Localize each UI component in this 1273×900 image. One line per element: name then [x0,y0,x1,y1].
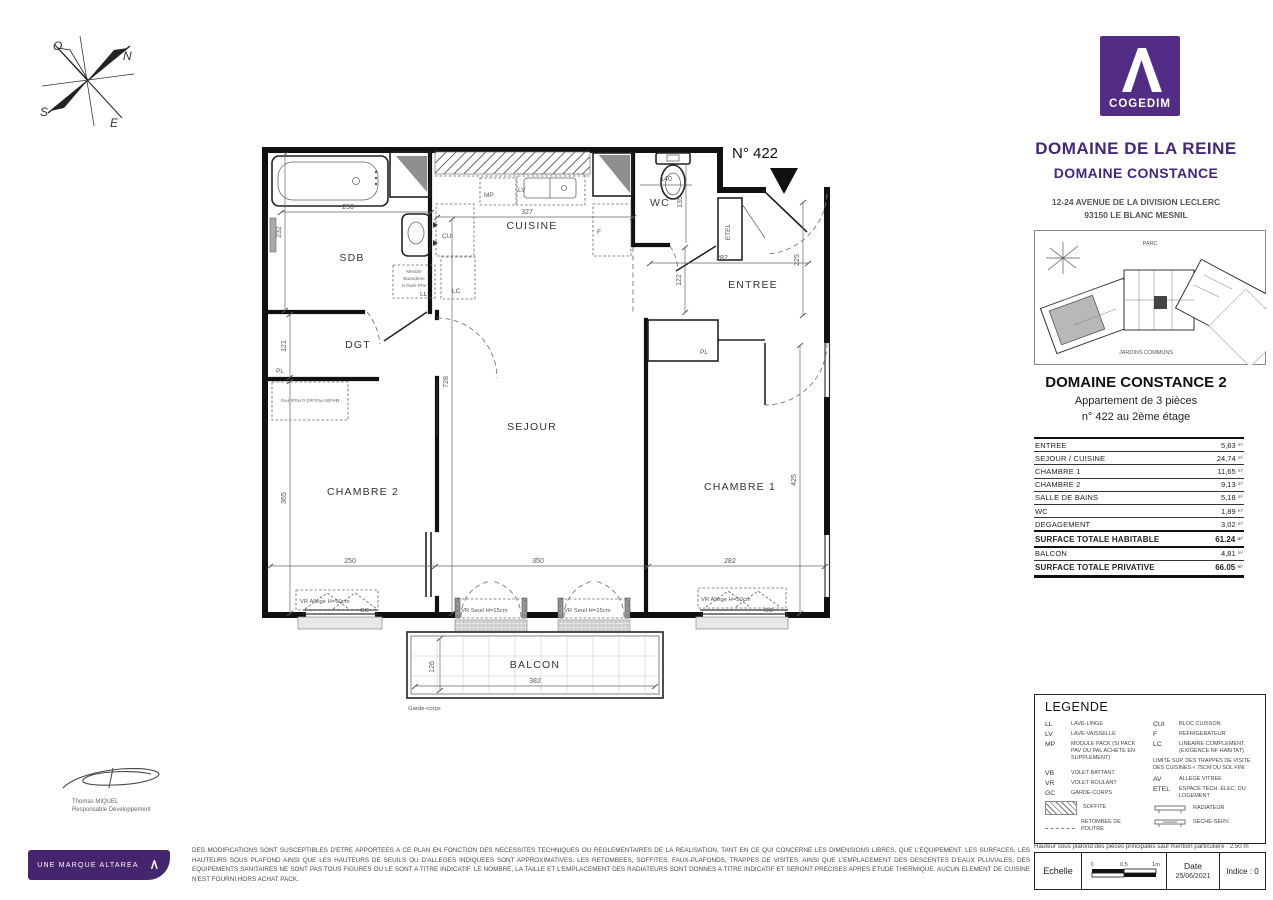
dim-balcon-depth: 126 [429,661,436,673]
room-entree-label: ENTREE [728,279,778,291]
interior-walls [265,150,668,615]
floor-plan: N° 422 [230,120,870,720]
project-subtitle: DOMAINE CONSTANCE [1008,165,1264,181]
legend-abbr: VR [1045,780,1071,787]
window-ch2-label: VR Allège H=50cm [300,599,350,605]
area-value: 11,65 m² [1217,467,1243,476]
soffite-hatch [435,152,590,174]
plan-sheet: O N S E N° 422 [0,0,1273,900]
dim-ch2-height: 365 [281,492,288,504]
legend-text: BLOC CUISSON [1179,721,1221,728]
dim-wc-height: 135 [677,196,684,208]
index-cell: Indice : 0 [1220,853,1265,889]
room-chambre2-label: CHAMBRE 2 [327,486,399,498]
area-label: SURFACE TOTALE PRIVATIVE [1035,563,1155,572]
dim-sejour-width: 350 [532,558,544,565]
scale-tick-05: 0,5 [1120,862,1128,868]
lambda-small-icon [147,858,161,872]
window-ch1-label: VR Allège H=50cm [701,597,751,603]
ll-label: LL [420,291,428,298]
window-sejour2-label: VR Seuil H=15cm [564,608,611,614]
ceiling-height-note: Hauteur sous plafond des pièces principa… [1034,843,1264,850]
legend-text: GARDE-CORPS [1071,790,1112,797]
compass-west-label: O [53,39,62,53]
area-value: 61.24 m² [1215,535,1243,544]
site-plan-thumbnail: PARC JARDINS COMMUNS [1034,230,1266,365]
dim-sdb-left: 232 [276,226,283,238]
legend-abbr: GC [1045,790,1071,797]
area-value: 5,18 m² [1221,493,1243,502]
area-value: 1,89 m² [1221,507,1243,516]
table-row: WC1,89 m² [1034,505,1244,518]
legend-text: ESPACE TECH. ELEC. DU LOGEMENT [1179,786,1257,800]
room-sdb-label: SDB [339,252,364,264]
dim-ch2-width: 250 [344,558,356,565]
table-row: CHAMBRE 29,13 m² [1034,479,1244,492]
soffite-swatch-icon [1045,801,1077,815]
signer-name: Thomas MIQUEL [72,798,151,806]
lc-label: LC [452,288,461,295]
legend-box: LEGENDE LLLAVE-LINGE LVLAVE-VAISSELLE MP… [1034,694,1266,844]
site-plan-jardins-label: JARDINS COMMUNS [1119,350,1173,356]
project-title: DOMAINE DE LA REINE [1008,139,1264,159]
dim-entree-width: 282 [716,255,728,262]
area-label: WC [1035,507,1048,516]
compass-south-label: S [40,105,48,119]
area-value: 9,13 m² [1221,480,1243,489]
lv-label: LV [518,187,526,194]
scale-tick-0: 0 [1090,862,1093,868]
room-balcon-label: BALCON [510,659,560,671]
dim-dgt: 121 [281,340,288,352]
area-value: 3,02 m² [1221,520,1243,529]
dim-ch1-width: 282 [724,558,736,565]
window-sejour1-label: VR Seuil H=15cm [461,608,508,614]
dim-sejour-height: 728 [443,376,450,388]
legend-text: REFRIGERATEUR [1179,731,1226,738]
dim-entree-height: 225 [794,254,801,266]
legend-column-left: LLLAVE-LINGE LVLAVE-VAISSELLE MPMODULE P… [1045,721,1140,832]
mp-label: MP [484,192,494,199]
meuble-buanderie-line2: Buanderie [403,276,425,281]
legend-text: LAVE-LINGE [1071,721,1103,728]
etel-closet: ETEL [718,198,765,260]
beam-dash-icon [1045,828,1075,829]
area-value: 4,81 m² [1221,549,1243,558]
table-row: ENTREE5,63 m² [1034,439,1244,452]
dim-ch1-height: 425 [791,474,798,486]
table-row: DEGAGEMENT3,02 m² [1034,518,1244,532]
compass-north-label: N [123,49,132,63]
bathtub [272,156,388,206]
legend-abbr: MP [1045,741,1071,762]
legend-text: ALLEGE VITREE [1179,776,1222,783]
dim-hall: 122 [676,274,683,286]
area-label: SURFACE TOTALE HABITABLE [1035,535,1159,544]
dim-tub: 250 [342,204,354,211]
cogedim-logo: COGEDIM [1100,36,1180,116]
unit-marker-arrow-icon [770,168,798,194]
table-row: CHAMBRE 111,65 m² [1034,465,1244,478]
table-row: BALCON4,81 m² [1034,548,1244,561]
address-line1: 12-24 AVENUE DE LA DIVISION LECLERC [1008,196,1264,209]
scale-bar: 0 0,5 1m [1082,853,1167,889]
altarea-brand-text: UNE MARQUE ALTAREA [37,862,138,869]
area-value: 5,63 m² [1221,441,1243,450]
windows-bottom: VR Allège H=50cm GC VR Seuil H=15cm VR S… [296,581,788,632]
scale-label: Echelle [1035,853,1082,889]
legend-text: RETOMBEE DE POUTRE [1081,819,1140,833]
legend-title: LEGENDE [1045,700,1108,714]
legend-abbr: LL [1045,721,1071,728]
garde-corps-label: Garde-corps [408,706,441,712]
disclaimer-text: DES MODIFICATIONS SONT SUSCEPTIBLES D'ET… [192,846,1030,884]
date-label: Date [1184,861,1202,872]
area-label: CHAMBRE 1 [1035,467,1081,476]
legend-abbr: CUI [1153,721,1179,728]
signer-role: Responsable Développement [72,806,151,814]
legend-text: LINEAIRE COMPLEMENT. (EXIGENCE NF HABITA… [1179,741,1257,755]
balcony: BALCON 126 382 Garde-corps [407,632,663,712]
project-address: 12-24 AVENUE DE LA DIVISION LECLERC 9315… [1008,196,1264,222]
area-label: ENTREE [1035,441,1067,450]
table-row-total: SURFACE TOTALE HABITABLE61.24 m² [1034,532,1244,548]
cogedim-logo-word: COGEDIM [1109,98,1171,110]
table-row: SEJOUR / CUISINE24,74 m² [1034,452,1244,465]
unit-location: n° 422 au 2ème étage [1008,411,1264,423]
area-label: BALCON [1035,549,1067,558]
legend-abbr: AV [1153,776,1179,783]
title-block: Echelle 0 0,5 1m Date 25/06/2021 Indice … [1034,852,1266,890]
legend-note: LIMITE SUP. DES TRAPPES DE VISITE DES CU… [1153,758,1257,772]
area-label: CHAMBRE 2 [1035,480,1081,489]
etel-label: ETEL [725,223,732,240]
legend-text: LAVE-VAISSELLE [1071,731,1116,738]
meuble-placard-label: Meuble Placard si Pack PAV [280,398,340,403]
address-line2: 93150 LE BLANC MESNIL [1008,209,1264,222]
legend-text: VOLET ROULANT [1071,780,1117,787]
dim-wc-width: 140 [660,176,672,183]
dim-cuisine: 327 [521,209,533,216]
table-row: SALLE DE BAINS5,18 m² [1034,492,1244,505]
area-label: DEGAGEMENT [1035,520,1090,529]
washbasin [402,214,438,256]
areas-table: ENTREE5,63 m² SEJOUR / CUISINE24,74 m² C… [1034,437,1244,578]
table-row-total: SURFACE TOTALE PRIVATIVE66.05 m² [1034,561,1244,575]
compass-east-label: E [110,116,119,130]
room-sejour-label: SEJOUR [507,421,557,433]
meuble-buanderie-line1: Meuble [406,269,422,274]
room-chambre1-label: CHAMBRE 1 [704,481,776,493]
legend-abbr: LV [1045,731,1071,738]
radiator-symbol-icon [1153,804,1189,814]
legend-abbr: F [1153,731,1179,738]
area-value: 24,74 m² [1217,454,1243,463]
area-label: SALLE DE BAINS [1035,493,1098,502]
legend-abbr: LC [1153,741,1179,755]
signature-scribble [55,758,185,800]
pl-ch1-label: PL [700,349,708,356]
technical-shaft [593,153,632,196]
lambda-icon: COGEDIM [1100,36,1180,116]
legend-abbr: ETEL [1153,786,1179,800]
gc-label-1: GC [360,608,370,614]
site-plan-parc-label: PARC [1143,241,1158,247]
dim-balcon-width: 382 [529,678,541,685]
legend-text: VOLET BATTANT [1071,770,1115,777]
shower [390,152,430,197]
legend-text: RADIATEUR [1193,805,1224,812]
compass-rose-icon: O N S E [28,28,143,133]
chambre1-closet: PL [648,320,718,361]
legend-text: SOFFITE [1083,804,1106,811]
dryer-symbol-icon [1153,818,1189,828]
area-label: SEJOUR / CUISINE [1035,454,1105,463]
pl-dgt-label: PL [276,368,284,375]
unit-number-label: N° 422 [732,145,778,162]
legend-abbr: VB [1045,770,1071,777]
legend-column-right: CUIBLOC CUISSON FREFRIGERATEUR LCLINEAIR… [1153,721,1257,828]
fridge-label: F [597,229,601,236]
room-cuisine-label: CUISINE [507,220,558,232]
residence-name: DOMAINE CONSTANCE 2 [1008,374,1264,391]
room-dgt-label: DGT [345,339,371,351]
altarea-brand-bar: UNE MARQUE ALTAREA [28,850,170,880]
meuble-buanderie-line3: si Pack PAV [401,283,427,288]
scale-tick-1m: 1m [1152,862,1160,868]
area-value: 66.05 m² [1215,563,1243,572]
room-wc-label: WC [650,197,670,209]
date-cell: Date 25/06/2021 [1167,853,1220,889]
legend-text: SECHE-SERV. [1193,819,1230,826]
dgt-closet: PL Meuble Placard si Pack PAV [272,368,348,420]
gc-label-2: GC [764,608,774,614]
date-value: 25/06/2021 [1175,872,1210,881]
legend-text: MODULE PACK (SI PACK PAV OU PAL ACHETE E… [1071,741,1140,762]
unit-type: Appartement de 3 pièces [1008,395,1264,407]
signature-block: Thomas MIQUEL Responsable Développement [72,798,151,815]
